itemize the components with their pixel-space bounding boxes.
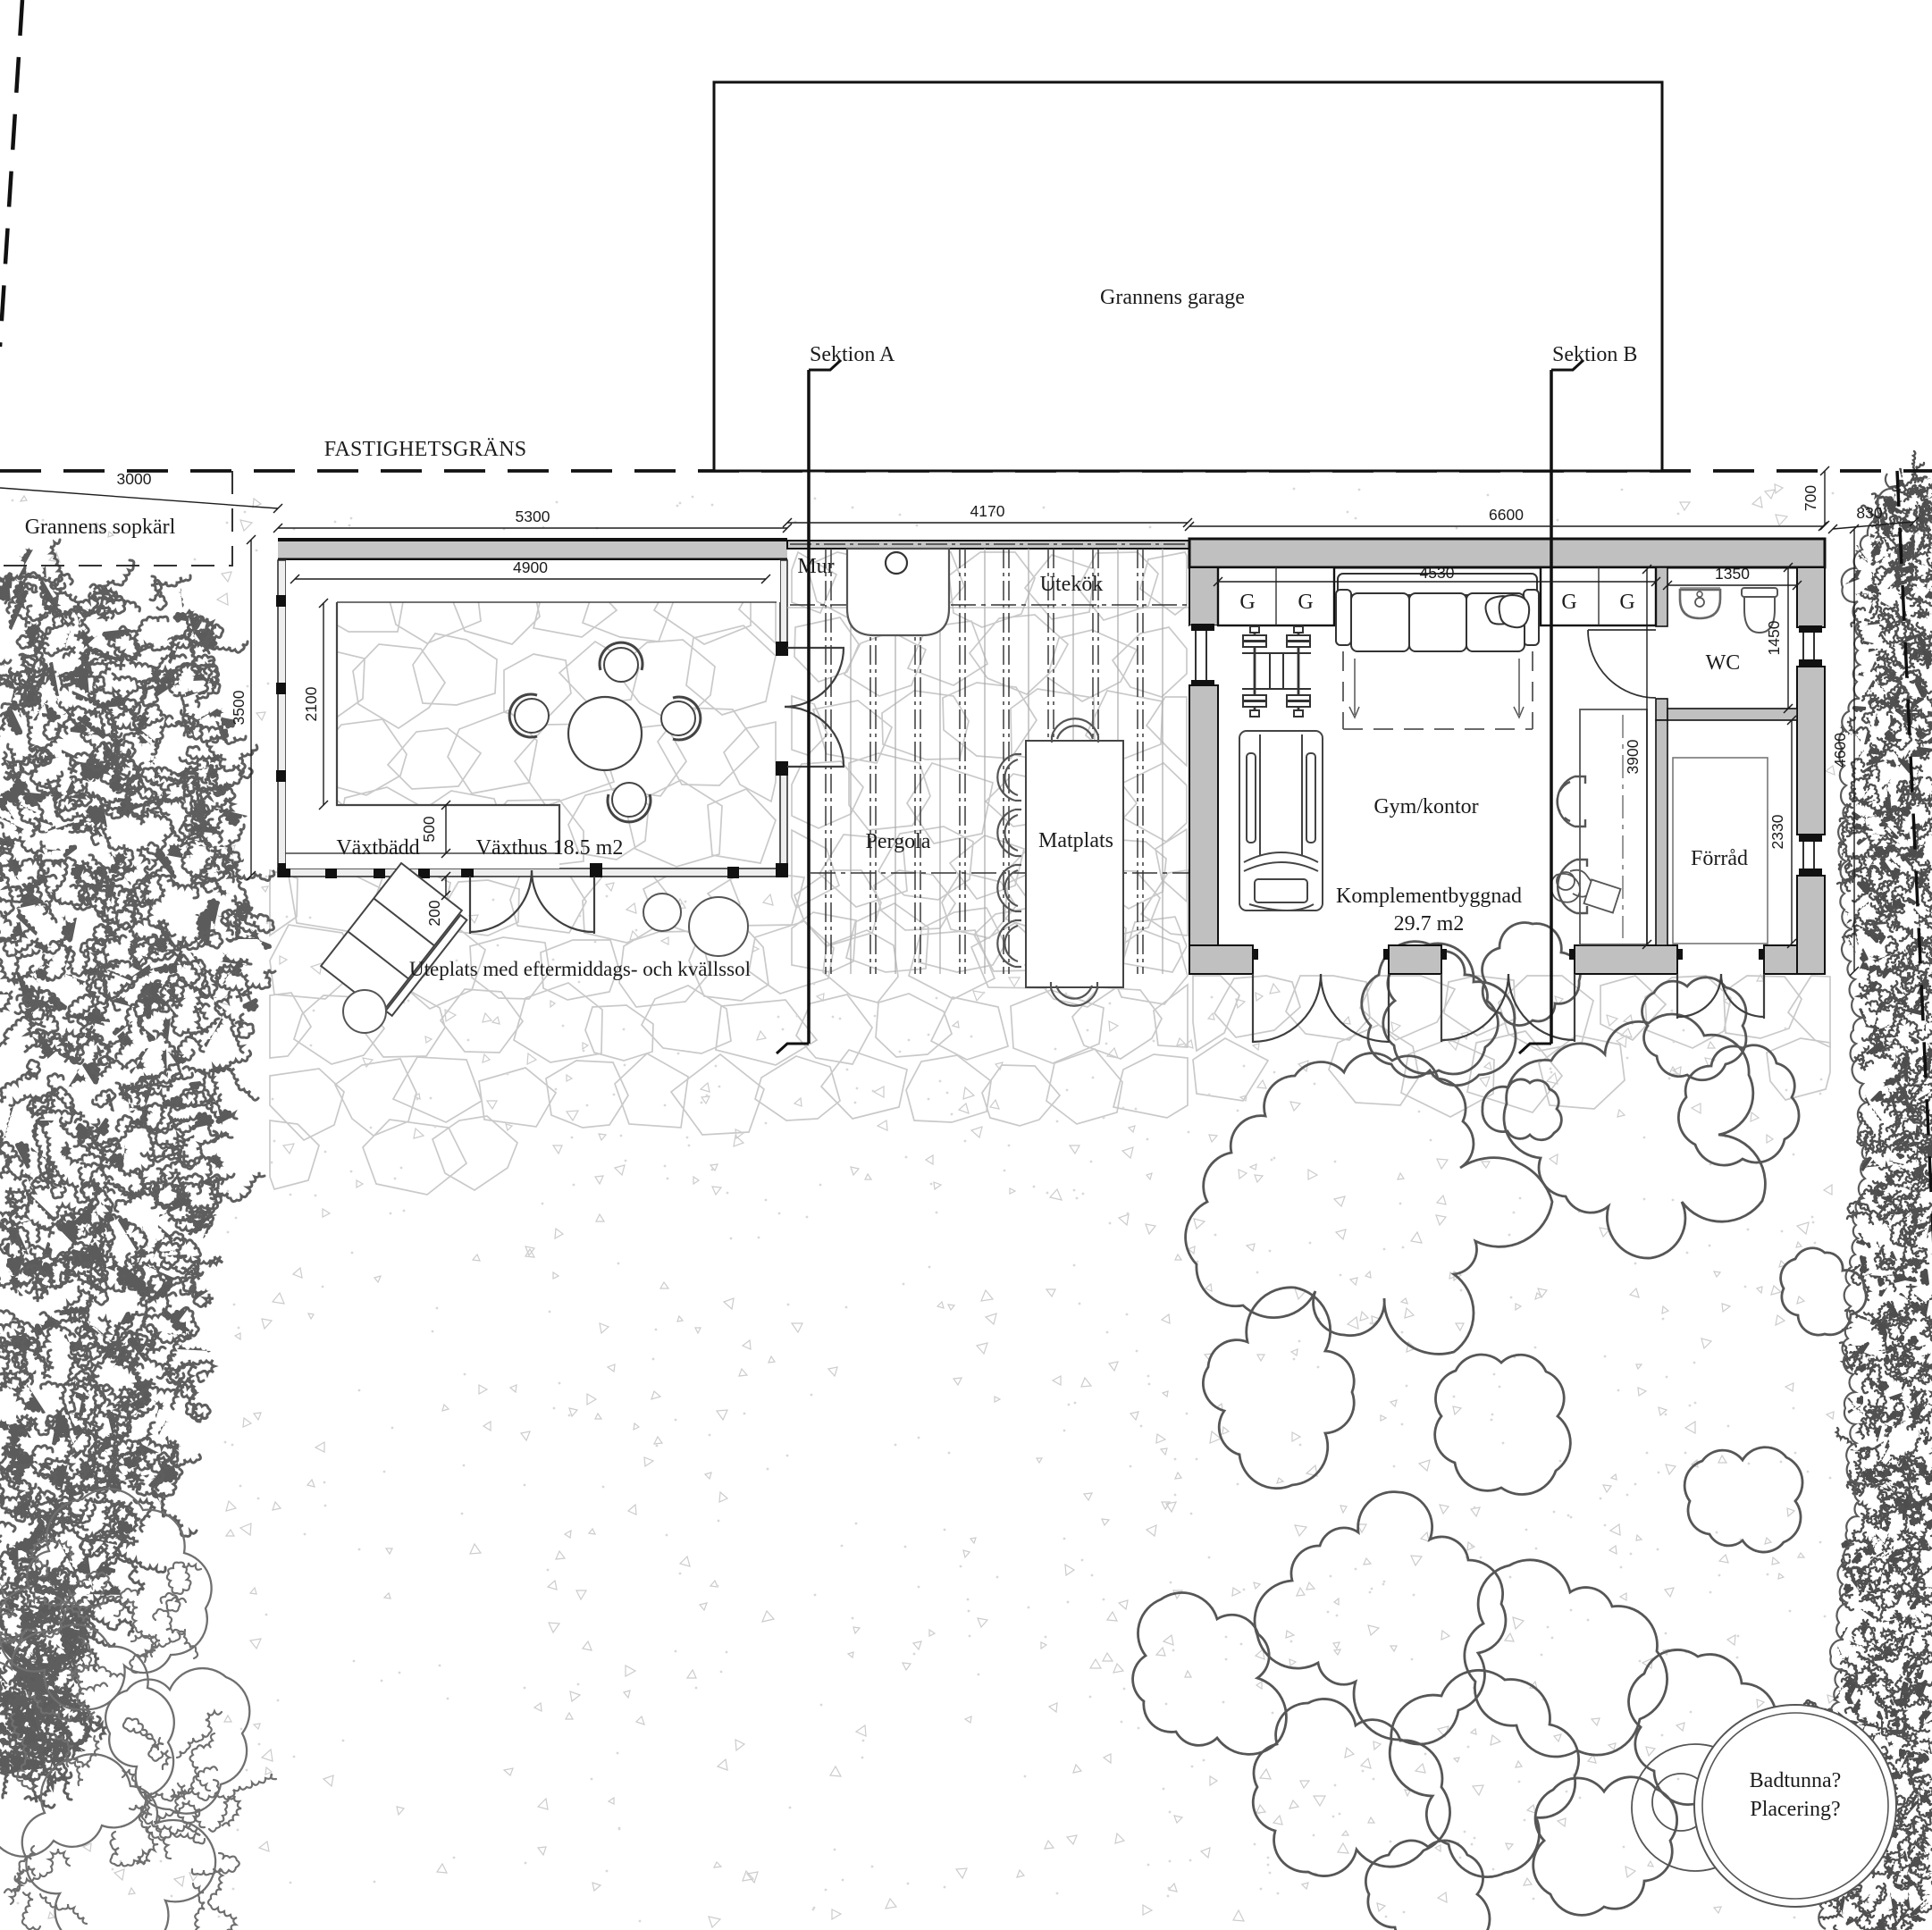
svg-text:2100: 2100	[302, 686, 320, 721]
svg-text:FASTIGHETSGRÄNS: FASTIGHETSGRÄNS	[324, 438, 527, 461]
svg-text:1350: 1350	[1715, 565, 1750, 583]
svg-text:Sektion A: Sektion A	[810, 343, 895, 366]
svg-text:Gym/kontor: Gym/kontor	[1373, 795, 1478, 818]
svg-text:G: G	[1239, 591, 1255, 614]
svg-text:4900: 4900	[513, 558, 548, 576]
svg-text:Komplementbyggnad: Komplementbyggnad	[1336, 885, 1522, 908]
svg-text:29.7 m2: 29.7 m2	[1394, 912, 1465, 936]
svg-text:3000: 3000	[117, 470, 152, 488]
svg-text:6600: 6600	[1489, 506, 1524, 524]
svg-text:Badtunna?: Badtunna?	[1750, 1769, 1842, 1792]
svg-text:1450: 1450	[1765, 620, 1783, 655]
svg-text:Sektion B: Sektion B	[1552, 343, 1637, 366]
svg-text:3500: 3500	[230, 690, 248, 725]
svg-text:Grannens garage: Grannens garage	[1100, 286, 1245, 309]
svg-text:5300: 5300	[516, 508, 550, 525]
svg-text:Växtbädd: Växtbädd	[336, 836, 419, 860]
svg-text:Förråd: Förråd	[1691, 847, 1748, 870]
svg-text:200: 200	[425, 900, 443, 926]
svg-text:Utekök: Utekök	[1040, 573, 1104, 596]
svg-text:Pergola: Pergola	[866, 830, 931, 853]
svg-text:Grannens sopkärl: Grannens sopkärl	[25, 516, 176, 539]
svg-text:G: G	[1298, 591, 1313, 614]
svg-text:Växthus 18.5 m2: Växthus 18.5 m2	[476, 836, 624, 860]
svg-text:3900: 3900	[1624, 739, 1642, 774]
svg-text:G: G	[1619, 591, 1634, 614]
svg-text:830: 830	[1856, 504, 1882, 522]
svg-text:Mur: Mur	[797, 555, 834, 578]
svg-text:4530: 4530	[1420, 564, 1455, 582]
svg-text:500: 500	[420, 816, 438, 842]
svg-text:4170: 4170	[970, 502, 1005, 520]
svg-text:Matplats: Matplats	[1038, 829, 1113, 852]
svg-text:700: 700	[1802, 485, 1819, 511]
svg-text:2330: 2330	[1768, 814, 1786, 849]
svg-text:4600: 4600	[1831, 733, 1849, 768]
svg-text:Uteplats med eftermiddags- och: Uteplats med eftermiddags- och kvällssol	[409, 958, 751, 980]
svg-text:WC: WC	[1706, 651, 1741, 675]
svg-text:Placering?: Placering?	[1750, 1798, 1840, 1821]
svg-text:G: G	[1561, 591, 1576, 614]
